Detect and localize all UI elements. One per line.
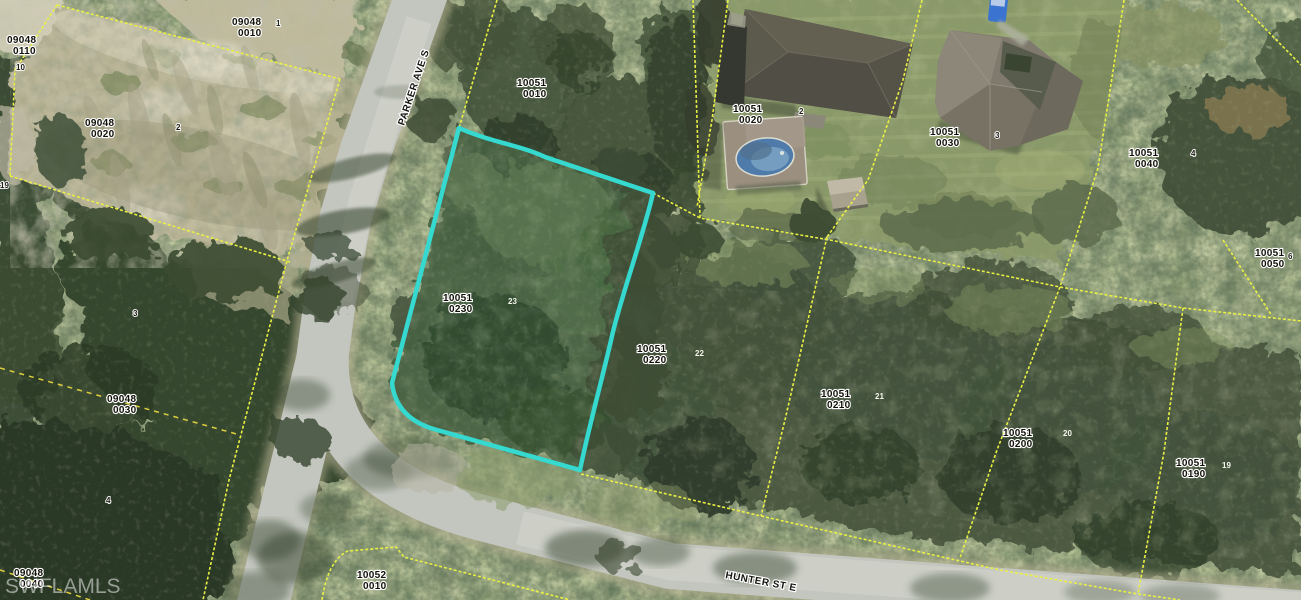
svg-text:0030: 0030 [936, 138, 960, 149]
svg-text:0200: 0200 [1009, 439, 1033, 450]
svg-text:6: 6 [1288, 252, 1293, 261]
svg-text:SWFLAMLS: SWFLAMLS [5, 575, 121, 598]
svg-text:10051: 10051 [1255, 248, 1284, 259]
svg-text:0020: 0020 [739, 115, 763, 126]
svg-text:09048: 09048 [107, 394, 136, 405]
svg-text:10051: 10051 [443, 293, 472, 304]
svg-text:1: 1 [276, 19, 281, 28]
svg-text:19: 19 [1222, 461, 1231, 470]
svg-text:0020: 0020 [91, 129, 115, 140]
svg-text:10051: 10051 [1003, 428, 1032, 439]
svg-text:2: 2 [176, 123, 181, 132]
svg-text:09048: 09048 [232, 17, 261, 28]
svg-text:3: 3 [995, 131, 1000, 140]
svg-text:09048: 09048 [85, 118, 114, 129]
svg-text:0010: 0010 [238, 28, 262, 39]
svg-text:10051: 10051 [1129, 148, 1158, 159]
svg-text:0210: 0210 [827, 400, 851, 411]
svg-text:19: 19 [0, 181, 9, 190]
svg-text:4: 4 [106, 496, 111, 505]
svg-text:0010: 0010 [523, 89, 547, 100]
svg-text:10051: 10051 [733, 104, 762, 115]
svg-text:20: 20 [1063, 429, 1072, 438]
svg-text:0230: 0230 [449, 304, 473, 315]
svg-text:10051: 10051 [821, 389, 850, 400]
svg-text:0030: 0030 [113, 405, 137, 416]
svg-text:0010: 0010 [363, 581, 387, 592]
svg-text:10051: 10051 [1176, 458, 1205, 469]
svg-text:23: 23 [508, 297, 517, 306]
svg-text:0050: 0050 [1261, 259, 1285, 270]
svg-text:4: 4 [1191, 149, 1196, 158]
svg-text:10052: 10052 [357, 570, 386, 581]
svg-text:10051: 10051 [517, 78, 546, 89]
svg-text:0040: 0040 [1135, 159, 1159, 170]
svg-text:0190: 0190 [1182, 469, 1206, 480]
svg-text:2: 2 [799, 107, 804, 116]
svg-text:09048: 09048 [7, 35, 36, 46]
svg-text:22: 22 [695, 349, 704, 358]
svg-text:0220: 0220 [643, 355, 667, 366]
svg-text:10051: 10051 [930, 127, 959, 138]
svg-text:3: 3 [133, 309, 138, 318]
svg-text:10: 10 [16, 63, 25, 72]
svg-text:10051: 10051 [637, 344, 666, 355]
svg-text:21: 21 [875, 392, 884, 401]
svg-text:0110: 0110 [13, 46, 36, 57]
